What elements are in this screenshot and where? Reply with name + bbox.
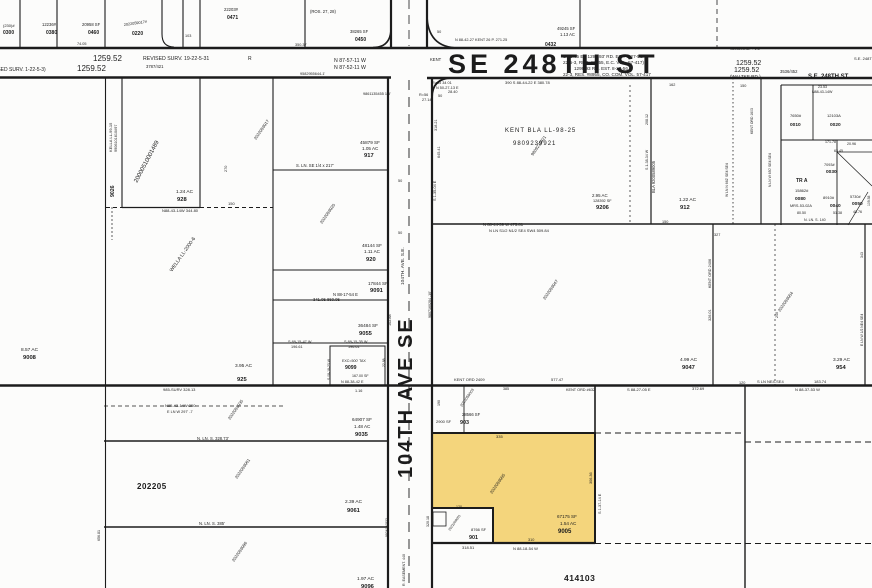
map-label: 9035 <box>355 432 369 438</box>
map-label: 350.37 <box>295 43 307 47</box>
map-label: 9807160284 -10' <box>428 291 432 318</box>
map-label: 920 <box>366 257 376 263</box>
map-label: R. EASEMENT. 440 <box>402 554 406 586</box>
map-label: 310 <box>528 538 534 542</box>
map-label: N. LN. S. 328.73' <box>197 436 229 441</box>
map-label: S 89-15-35 W <box>344 340 368 344</box>
highlighted-parcel-number: 9005 <box>558 529 572 535</box>
map-label: 1.16 <box>355 389 362 393</box>
map-label: S 89-15-47 W <box>288 340 312 344</box>
map-label: (230)# <box>3 23 15 28</box>
highlighted-parcel-acres: 1.54 AC <box>560 521 577 526</box>
map-label: 9047 <box>682 365 695 371</box>
map-label: 9055 <box>359 331 373 337</box>
map-label: S 88-45 E - 1299.93' RD. EST. 8-27-56. <box>563 54 644 59</box>
map-label: 240 <box>775 312 779 318</box>
street-label-104th-ave-small: 104TH. AVE. S.E. <box>400 247 406 285</box>
map-label: 1.24 AC <box>176 189 194 195</box>
map-label: 306.36 <box>589 472 593 484</box>
map-label: 1299.93 RD. EST. 8-27-56 <box>574 66 628 71</box>
map-label: 320.18 <box>426 516 430 527</box>
map-label: 9026 <box>110 185 116 197</box>
map-label: 3.95 AC <box>235 363 253 369</box>
map-label: 12103A <box>827 113 841 118</box>
map-label: 0010 <box>790 122 801 128</box>
map-label: 2.39 AC <box>345 499 363 505</box>
map-label: 17844 SF <box>368 281 388 286</box>
map-label: N 88-38-42 E <box>341 380 364 384</box>
map-label: S LN NE4-SE4 <box>757 379 784 384</box>
map-label: 1259.52 <box>93 54 122 63</box>
map-label: N88-43-14W 344.80 <box>162 208 199 213</box>
section-label-414103: 414103 <box>564 573 595 583</box>
map-label: KELLA LL-99-15 <box>108 122 113 152</box>
map-label: 23.53 <box>818 85 827 89</box>
map-label: 0450 <box>355 37 366 43</box>
map-label: 9582955644-1' <box>300 72 325 76</box>
map-label: 51.38 <box>833 211 842 215</box>
map-label: 150 <box>228 201 235 206</box>
map-label: 208.12 <box>645 114 649 125</box>
map-label: 171.78 <box>825 140 836 144</box>
map-label: 2900 SF <box>436 419 452 424</box>
map-label: 385 <box>503 387 509 391</box>
map-label: 0471 <box>227 15 238 21</box>
map-label: 183.74 <box>814 379 827 384</box>
map-label: (ROS. 27, 28) <box>310 9 336 14</box>
map-label: 917 <box>364 153 374 159</box>
map-label: KENT ORD 2406 <box>708 259 712 288</box>
map-label: 48144 SF <box>362 243 382 248</box>
map-label: 0220 <box>132 31 143 37</box>
map-label: 0432 <box>545 42 556 48</box>
map-label: 577.47 <box>551 377 564 382</box>
map-label: 3536/452 <box>780 69 798 74</box>
map-label: 318.51 <box>462 545 475 550</box>
map-label: 196.61 <box>291 345 303 349</box>
map-label: 162 <box>669 83 675 87</box>
map-label: 327 <box>714 233 720 237</box>
map-label: TR A <box>796 178 808 184</box>
map-label: 120 <box>739 381 745 385</box>
map-label: S 1-38-34 W <box>645 149 649 170</box>
map-label: 372.69 <box>692 386 705 391</box>
map-label: 1259.52 <box>77 64 106 73</box>
map-label: N LN W 650' SE4 SE4 <box>768 153 772 187</box>
map-label: 3.29 AC <box>833 357 851 363</box>
map-label: R=56 <box>419 93 428 97</box>
map-label: 954 <box>836 365 846 371</box>
map-label: 0040 <box>830 203 841 209</box>
map-label: E LN W 1/2 NE4 SE4 <box>860 314 864 346</box>
map-label: 1.48 AC <box>354 424 371 429</box>
map-label: 8766 SF <box>471 527 487 532</box>
map-label: 63.45 <box>834 149 843 153</box>
map-label: 0050 <box>852 201 863 207</box>
map-label: 9206 <box>596 205 610 211</box>
map-label: R=55 34 01 <box>432 81 452 85</box>
map-label: 1.05 AC <box>362 146 379 151</box>
map-label: 1259.52 <box>736 60 761 67</box>
map-label: N 88-42-27 KENT 26 P. 271.25 <box>455 38 507 42</box>
map-label: 50 <box>398 231 402 235</box>
map-label: KENT ORD 2409 <box>454 377 485 382</box>
map-label: 36484 SF <box>358 323 378 328</box>
map-label: 8910# <box>823 195 835 200</box>
map-label: N LN S1/2 N1/2 SE4 SW4 509.84 <box>489 228 550 233</box>
map-label: 28.40 <box>448 90 458 94</box>
map-label: 0460 <box>88 30 99 36</box>
map-label: 4.99 AC <box>680 357 698 363</box>
map-label: 341.05 860.05 <box>313 297 340 302</box>
map-label: KENT BLA LL-98-25 <box>505 128 576 134</box>
map-label: N 88-37-53 W <box>795 387 820 392</box>
map-label: E LN W 297' -7 <box>167 410 193 414</box>
map-label: REVISED SURV. 19-22-5-31 <box>143 56 209 62</box>
map-label: 1.22 AC <box>679 197 697 203</box>
map-label: 1.97 AC <box>357 576 375 582</box>
map-label: 656.81 <box>97 530 101 541</box>
map-label: 150 <box>740 84 746 88</box>
map-label: 0020 <box>830 122 841 128</box>
map-label: 50 <box>398 179 402 183</box>
map-label: 9861135455 1.5' <box>363 92 391 96</box>
map-label: EXC=500' TAX <box>342 359 366 363</box>
map-label: 48.76 <box>853 210 862 214</box>
map-label: N 87-57-11 W <box>334 58 366 64</box>
map-label: 9061 <box>347 508 361 514</box>
map-label: 901 <box>469 535 478 541</box>
map-label: 5730# <box>850 195 861 199</box>
map-label: 22203# <box>224 7 239 12</box>
map-label: KENT ORD #632 <box>566 388 595 392</box>
map-label: 985-SURV 328.13 <box>163 387 196 392</box>
map-label: 0030 <box>826 169 837 175</box>
map-label: W LN N 662' SE4 SE4 <box>725 163 729 197</box>
map-label: BLA 9200589005 <box>651 160 656 193</box>
map-label: N88-43-14W <box>812 90 833 94</box>
map-label: 9096 <box>361 584 375 588</box>
map-label: 912 <box>680 205 690 211</box>
map-label: N. LN. S. 140 <box>804 218 826 222</box>
street-label-waltke-rd: (WALTKE RD.) <box>730 74 761 79</box>
map-label: 28566 SF <box>462 412 481 417</box>
map-label: 1.13 AC <box>560 32 575 37</box>
map-label: S 1-37-14 E <box>598 493 602 514</box>
map-label: 9924190532 <box>385 518 389 537</box>
map-label: 390 S 88-44-22 E 380.78 <box>505 80 550 85</box>
map-label: 120 <box>456 505 462 509</box>
map-label: 49245 SF <box>557 26 576 31</box>
street-label-se-248th-right: S.E. 248TH ST. <box>808 74 850 80</box>
map-label: 27.14 <box>422 98 432 102</box>
map-label: 22.88 <box>382 358 386 367</box>
map-label: 74.05 <box>77 42 87 46</box>
map-label: 343 <box>860 252 864 258</box>
map-label: S 88-27-05 E <box>627 387 651 392</box>
map-label: 2.95 AC <box>592 193 608 198</box>
map-label: 326.01 <box>708 309 712 321</box>
map-label: 0300 <box>3 30 14 36</box>
map-label: (REVISED SURV. 1-22-5-3) <box>0 67 46 73</box>
map-label: 50 <box>438 94 442 98</box>
map-label: MRS-53-02A <box>790 204 812 208</box>
map-label: 7650# <box>790 113 802 118</box>
map-label: R <box>248 56 252 62</box>
map-label: 8.57 AC <box>21 347 39 353</box>
map-label: 167.00 SF <box>352 374 369 378</box>
map-label: 928 <box>177 197 187 203</box>
map-label: 12236# <box>42 22 57 27</box>
plat-map: SE 248TH ST 104TH AVE SE 104TH. AVE. S.E… <box>0 0 872 588</box>
map-label: KENT <box>430 57 442 62</box>
map-label: 0380 <box>46 30 57 36</box>
map-label: 190 <box>437 400 441 406</box>
section-label-202205: 202205 <box>137 482 167 491</box>
map-label: 1.11 AC <box>364 249 381 254</box>
map-label: 1259.52 <box>734 67 759 74</box>
map-label: S 08-18-23 W <box>327 358 331 380</box>
map-label: 50 <box>437 30 441 34</box>
map-label: 64907 SF <box>352 417 372 422</box>
map-label: 20958 SF <box>82 22 101 27</box>
map-label: 335 <box>496 434 503 439</box>
map-label: 645.41 <box>437 146 441 158</box>
map-label: 103 <box>185 34 191 38</box>
map-label: 0080 <box>795 196 806 202</box>
map-label: 9803293487 - 1.5' <box>730 47 761 51</box>
map-label: 270 <box>224 166 228 172</box>
street-label-104th-ave: 104TH AVE SE <box>395 317 417 478</box>
map-label: 318.21 <box>434 119 438 131</box>
map-label: 150 <box>662 220 668 224</box>
plat-map-canvas: SE 248TH ST 104TH AVE SE 104TH. AVE. S.E… <box>0 0 872 588</box>
map-label: S 1-35-04 E <box>433 180 437 201</box>
map-label: 9091 <box>370 288 384 294</box>
map-label: N 87-52-11 W <box>334 65 366 71</box>
map-label: 109.58 <box>867 196 871 206</box>
map-label: 3787/421 <box>146 64 164 69</box>
map-label: 20.96 <box>847 142 856 146</box>
map-label: 22-3, RES. #8955, CO. COM. VOL. 57-417 <box>563 72 651 77</box>
map-label: 903 <box>460 420 469 426</box>
map-label: 925 <box>237 377 247 383</box>
map-label: 7093# <box>824 163 835 167</box>
map-label: 196.61 <box>348 345 360 349</box>
map-label: S. LN. SE 1/4 x 217' <box>296 163 334 168</box>
map-label: 45879 SF <box>360 140 380 145</box>
map-label: 9008 <box>23 355 37 361</box>
map-label: S.E. 248TH ST. <box>854 56 872 61</box>
map-label: N85-43-14W 350 <box>165 403 196 408</box>
highlighted-parcel-sf: 67175 SF <box>557 514 577 519</box>
map-label: N. LN. S. 385' <box>199 521 225 526</box>
map-label: N 88-44-39 W 475.81 <box>483 222 524 227</box>
map-label: 15862# <box>795 188 809 193</box>
map-label: KENT ORD 1603 <box>750 108 754 134</box>
map-label: 102.88 <box>388 314 392 326</box>
map-label: 9099 <box>345 365 357 371</box>
map-label: 22-5-3, RES. #8955, E.C. VOL. 57-417) <box>563 60 644 65</box>
map-label: 9906101610#97 <box>114 125 118 152</box>
map-label: 128392 SF <box>593 199 612 203</box>
map-label: N 88-18-54 W <box>513 546 538 551</box>
map-label: 38265 SF <box>350 29 369 34</box>
map-label: 80.50 <box>797 211 806 215</box>
